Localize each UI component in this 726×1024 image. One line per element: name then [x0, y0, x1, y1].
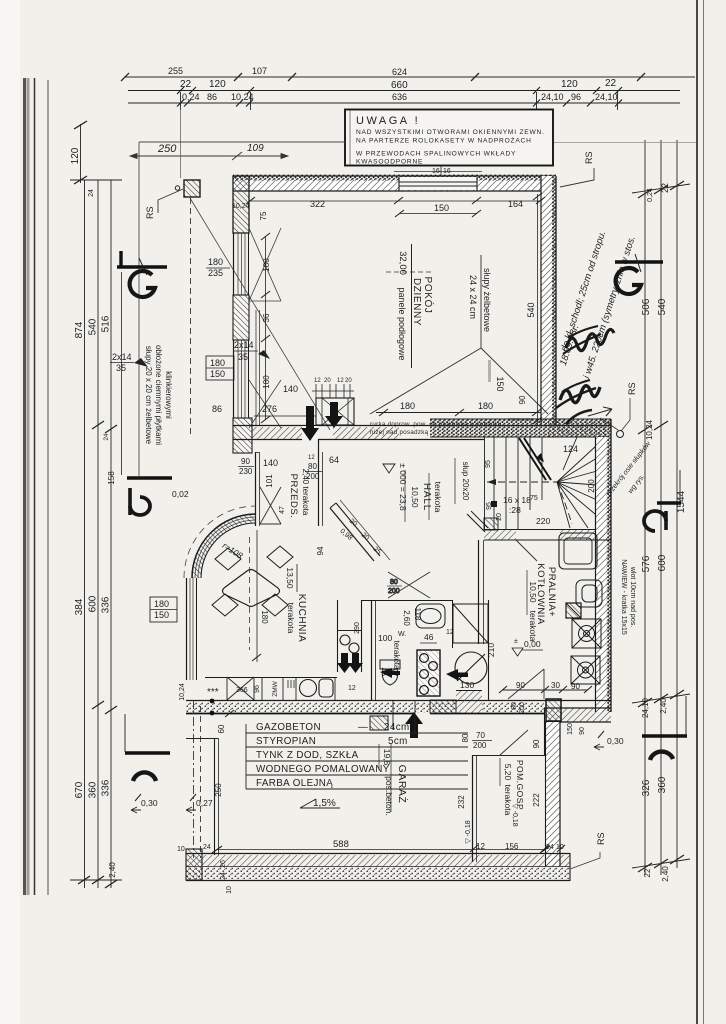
svg-text:terakota: terakota	[286, 603, 296, 634]
svg-text:130: 130	[460, 680, 474, 690]
svg-text:290: 290	[354, 622, 361, 634]
svg-text:2,40: 2,40	[659, 698, 668, 714]
svg-text:35: 35	[116, 363, 126, 373]
svg-text:słupy żelbetowe: słupy żelbetowe	[482, 268, 492, 332]
svg-text:2,40: 2,40	[108, 862, 117, 878]
svg-text:klinkierowymi: klinkierowymi	[164, 371, 173, 419]
svg-text:109: 109	[247, 143, 264, 154]
svg-text:***: ***	[207, 687, 219, 698]
svg-text:DZIENNY: DZIENNY	[411, 278, 422, 326]
svg-text:32,00: 32,00	[397, 251, 408, 275]
svg-text:150: 150	[495, 376, 505, 391]
svg-text:180: 180	[262, 375, 271, 389]
svg-text:158: 158	[107, 471, 116, 485]
svg-text:118: 118	[413, 608, 422, 621]
svg-text:HALL: HALL	[421, 483, 432, 511]
svg-text:70: 70	[476, 731, 485, 740]
svg-text:1,5%: 1,5%	[313, 798, 336, 809]
svg-text:NAWIEW - kratka 15x15: NAWIEW - kratka 15x15	[620, 559, 627, 635]
svg-text:10,24: 10,24	[232, 203, 250, 210]
svg-text:222: 222	[532, 793, 541, 807]
svg-text:874: 874	[74, 321, 85, 338]
svg-text:180: 180	[260, 610, 269, 624]
svg-text:10,24: 10,24	[231, 92, 254, 102]
svg-text:46: 46	[424, 632, 434, 642]
svg-text:200: 200	[306, 472, 320, 481]
svg-text:75: 75	[530, 495, 538, 502]
svg-text:pos.beton.: pos.beton.	[384, 776, 394, 816]
svg-text:180: 180	[208, 257, 223, 267]
svg-text:95: 95	[486, 502, 493, 510]
svg-text:180: 180	[478, 401, 493, 411]
svg-text:W.: W.	[398, 631, 406, 638]
svg-text:64: 64	[329, 455, 339, 465]
svg-text:384: 384	[74, 598, 85, 615]
svg-text:22: 22	[605, 78, 617, 89]
svg-text:PRZEDS.: PRZEDS.	[288, 474, 299, 519]
svg-text:540: 540	[88, 318, 99, 335]
svg-text:255: 255	[168, 66, 183, 76]
svg-text:2x14: 2x14	[112, 352, 132, 362]
svg-text:101: 101	[265, 474, 274, 488]
svg-text:12: 12	[476, 842, 485, 851]
svg-text:140: 140	[283, 384, 298, 394]
svg-text:36: 36	[262, 313, 271, 322]
svg-text:RS: RS	[584, 151, 594, 164]
svg-text:636: 636	[392, 92, 407, 102]
svg-text:GARAŻ: GARAŻ	[396, 765, 409, 804]
svg-text:30: 30	[551, 681, 560, 690]
svg-text:▽ -0,18: ▽ -0,18	[465, 820, 472, 843]
svg-text:140: 140	[263, 458, 278, 468]
svg-text:—: —	[358, 722, 368, 733]
svg-text:TYNK Z DOD, SZKŁA: TYNK Z DOD, SZKŁA	[256, 750, 359, 761]
svg-text:0,24: 0,24	[647, 188, 654, 202]
svg-text:wlot 10cm nad pos.: wlot 10cm nad pos.	[629, 566, 636, 627]
svg-text:5,20: 5,20	[503, 764, 513, 781]
svg-text:80: 80	[511, 702, 518, 710]
svg-text:obłożone ciemnymi płytkami: obłożone ciemnymi płytkami	[154, 345, 163, 445]
svg-text:506: 506	[641, 298, 652, 315]
svg-text:35: 35	[238, 352, 248, 362]
svg-text:366: 366	[236, 687, 248, 694]
svg-text:180: 180	[400, 401, 415, 411]
svg-text:16: 16	[432, 168, 440, 175]
svg-text:276: 276	[262, 404, 277, 414]
svg-text:164: 164	[508, 199, 523, 209]
svg-text:47: 47	[279, 506, 286, 514]
svg-text:90: 90	[532, 739, 541, 748]
svg-text:180: 180	[262, 258, 271, 272]
svg-text:75: 75	[259, 211, 268, 220]
svg-text:90: 90	[579, 727, 586, 735]
svg-text:UWAGA !: UWAGA !	[356, 115, 420, 127]
svg-text:terakota: terakota	[433, 482, 443, 513]
svg-text:232: 232	[457, 795, 466, 809]
svg-text:250: 250	[157, 143, 177, 155]
svg-text:80: 80	[390, 579, 398, 586]
svg-text:250: 250	[214, 783, 223, 797]
svg-text:0,30: 0,30	[141, 798, 158, 808]
svg-text:5cm: 5cm	[388, 736, 408, 747]
svg-text:2,40: 2,40	[661, 866, 670, 882]
svg-text:słupy 20 x 20 cm żelbetowe: słupy 20 x 20 cm żelbetowe	[144, 346, 153, 445]
svg-text:95: 95	[485, 460, 492, 468]
svg-text:120: 120	[209, 79, 226, 90]
svg-text:12: 12	[314, 378, 321, 384]
svg-text:100: 100	[378, 633, 392, 643]
svg-text:RS: RS	[596, 832, 606, 845]
svg-text:16: 16	[443, 168, 451, 175]
svg-text:2x14: 2x14	[234, 340, 254, 350]
svg-text:10,24: 10,24	[645, 419, 654, 440]
svg-text:22: 22	[643, 868, 652, 877]
svg-text:PRALNIA+: PRALNIA+	[546, 567, 557, 617]
svg-text:200: 200	[519, 702, 526, 714]
svg-text:540: 540	[526, 302, 536, 317]
svg-text:RS: RS	[627, 382, 637, 395]
svg-text:słup 20x20: słup 20x20	[461, 462, 470, 501]
svg-text:10,50: 10,50	[410, 486, 420, 508]
svg-text:230: 230	[239, 467, 253, 476]
svg-text:24,10: 24,10	[641, 697, 650, 718]
svg-text:150: 150	[434, 203, 449, 213]
svg-text:624: 624	[392, 67, 407, 77]
svg-text:0,27: 0,27	[196, 798, 213, 808]
svg-text:90: 90	[241, 457, 250, 466]
svg-text:360: 360	[88, 781, 99, 798]
svg-text:24: 24	[103, 433, 110, 441]
svg-text:120: 120	[70, 147, 81, 164]
svg-text:GAZOBETON: GAZOBETON	[256, 722, 321, 733]
svg-text:326: 326	[641, 779, 652, 796]
svg-text:588: 588	[333, 839, 349, 850]
svg-text:WODNEGO POMALOWANY: WODNEGO POMALOWANY	[256, 764, 390, 775]
svg-text:12: 12	[308, 455, 315, 461]
svg-text:600: 600	[657, 554, 668, 571]
svg-text:20: 20	[324, 378, 331, 384]
svg-text:POKÓJ: POKÓJ	[422, 277, 435, 314]
svg-text:niżej nad posadzką: niżej nad posadzką	[370, 429, 429, 436]
svg-text:terakota: terakota	[392, 641, 401, 670]
svg-text:▽ -0,18: ▽ -0,18	[511, 803, 518, 826]
svg-text:10,24: 10,24	[179, 683, 186, 701]
svg-text:210: 210	[486, 643, 496, 657]
svg-text:24: 24	[220, 872, 227, 880]
svg-text:540: 540	[657, 298, 668, 315]
svg-text:FARBA OLEJNĄ: FARBA OLEJNĄ	[256, 778, 333, 789]
svg-text:235: 235	[208, 268, 223, 278]
svg-text:terakota: terakota	[528, 611, 538, 642]
svg-text:NA PARTERZE ROLOKASETY W NADPR: NA PARTERZE ROLOKASETY W NADPROŻACH	[356, 136, 532, 145]
svg-text:06: 06	[517, 396, 526, 405]
svg-text:ZMW: ZMW	[272, 680, 279, 696]
svg-text:670: 670	[74, 781, 85, 798]
svg-text:rurka doprow. pow. do palenisk: rurka doprow. pow. do paleniska w komink…	[370, 421, 502, 428]
svg-text:22: 22	[660, 183, 670, 193]
svg-text:NAD WSZYSTKIMI OTWORAMI OKIENN: NAD WSZYSTKIMI OTWORAMI OKIENNYMI ZEWN.	[356, 129, 545, 136]
svg-text:600: 600	[88, 595, 99, 612]
svg-text:12: 12	[348, 685, 356, 692]
svg-text:96: 96	[254, 685, 261, 693]
svg-text:20: 20	[345, 378, 352, 384]
svg-text::28: :28	[509, 505, 521, 515]
svg-text:RS: RS	[145, 206, 155, 219]
svg-text:660: 660	[391, 80, 408, 91]
svg-text:24: 24	[88, 189, 95, 197]
svg-text:0,02: 0,02	[172, 489, 189, 499]
svg-text:10: 10	[226, 886, 233, 894]
svg-text:576: 576	[641, 555, 652, 572]
svg-text:94: 94	[316, 546, 325, 555]
svg-text:26: 26	[220, 860, 227, 868]
svg-text:13,50: 13,50	[285, 567, 295, 589]
svg-text:150: 150	[567, 723, 574, 735]
svg-text:24: 24	[546, 844, 554, 851]
svg-text:150: 150	[154, 610, 169, 620]
svg-text:200: 200	[388, 588, 400, 595]
svg-text:10: 10	[177, 846, 185, 853]
svg-text:107: 107	[252, 66, 267, 76]
svg-text:360: 360	[657, 776, 668, 793]
svg-text:200: 200	[473, 741, 487, 750]
svg-text:96: 96	[571, 92, 581, 102]
svg-text:22: 22	[180, 79, 192, 90]
svg-text:220: 220	[536, 516, 550, 526]
svg-text:20: 20	[496, 513, 503, 521]
svg-text:86: 86	[212, 404, 222, 414]
svg-text:24,10: 24,10	[595, 92, 618, 102]
svg-text:150: 150	[210, 369, 225, 379]
svg-text:180: 180	[210, 358, 225, 368]
svg-text:0,24: 0,24	[182, 92, 200, 102]
svg-text:16 x 18: 16 x 18	[503, 495, 531, 505]
svg-text:156: 156	[505, 842, 519, 851]
svg-text:2,60: 2,60	[402, 610, 411, 626]
svg-text:0,00: 0,00	[524, 639, 541, 649]
svg-text:24,10: 24,10	[541, 92, 564, 102]
svg-text:W PRZEWODACH SPALINOWYCH WKŁAD: W PRZEWODACH SPALINOWYCH WKŁADY	[356, 151, 516, 158]
svg-text:322: 322	[310, 199, 325, 209]
svg-text:336: 336	[101, 596, 112, 613]
svg-text:0,30: 0,30	[607, 736, 624, 746]
svg-text:124: 124	[563, 444, 578, 454]
svg-text:± 000 = 23,8: ± 000 = 23,8	[398, 463, 408, 511]
svg-text:24cm: 24cm	[384, 722, 410, 733]
svg-text:KWASOODPORNE: KWASOODPORNE	[356, 159, 423, 166]
svg-text:120: 120	[561, 79, 578, 90]
svg-text:±: ±	[514, 638, 518, 645]
svg-text:12: 12	[446, 629, 454, 636]
svg-text:516: 516	[101, 315, 112, 332]
svg-text:panele podłogowe: panele podłogowe	[397, 287, 407, 360]
svg-text:80: 80	[308, 462, 317, 471]
svg-text:STYROPIAN: STYROPIAN	[256, 736, 316, 747]
svg-text:KUCHNIA: KUCHNIA	[296, 594, 307, 643]
svg-text:24: 24	[203, 844, 211, 851]
svg-text:80: 80	[461, 733, 470, 742]
svg-text:180: 180	[154, 599, 169, 609]
svg-text:12: 12	[337, 378, 344, 384]
svg-text:60: 60	[217, 724, 226, 733]
svg-text:336: 336	[101, 779, 112, 796]
svg-text:24 x 24 cm: 24 x 24 cm	[468, 275, 478, 319]
svg-text:86: 86	[207, 92, 217, 102]
svg-text:200: 200	[587, 479, 596, 493]
